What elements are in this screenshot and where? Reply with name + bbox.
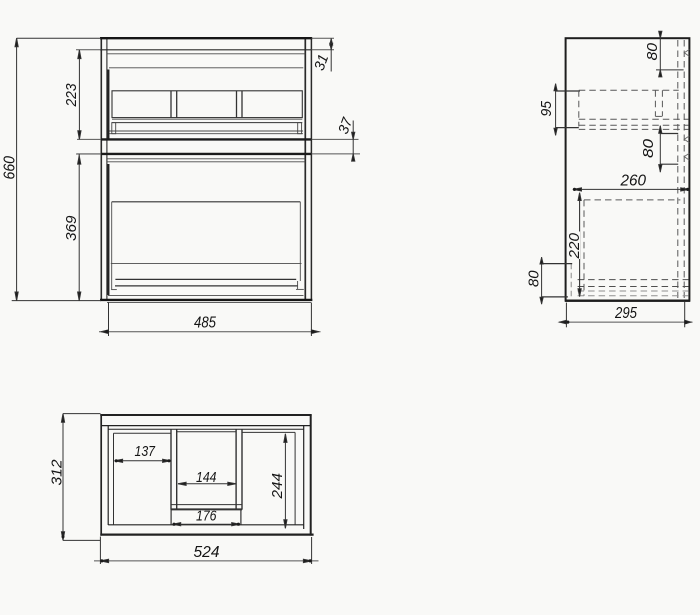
svg-text:223: 223 xyxy=(63,83,80,108)
svg-text:369: 369 xyxy=(63,215,80,241)
svg-text:244: 244 xyxy=(269,473,286,500)
svg-text:524: 524 xyxy=(194,544,220,561)
svg-text:80: 80 xyxy=(644,42,661,60)
svg-text:80: 80 xyxy=(640,138,657,158)
svg-text:137: 137 xyxy=(135,443,156,460)
svg-text:144: 144 xyxy=(196,469,217,486)
svg-text:660: 660 xyxy=(2,156,19,180)
svg-text:295: 295 xyxy=(614,305,637,322)
svg-text:312: 312 xyxy=(49,459,66,486)
svg-text:95: 95 xyxy=(538,100,555,116)
svg-text:485: 485 xyxy=(194,315,216,332)
svg-text:176: 176 xyxy=(196,508,217,525)
svg-text:31: 31 xyxy=(312,52,333,73)
svg-text:80: 80 xyxy=(526,270,543,287)
svg-text:220: 220 xyxy=(566,232,583,259)
svg-text:260: 260 xyxy=(620,172,647,189)
